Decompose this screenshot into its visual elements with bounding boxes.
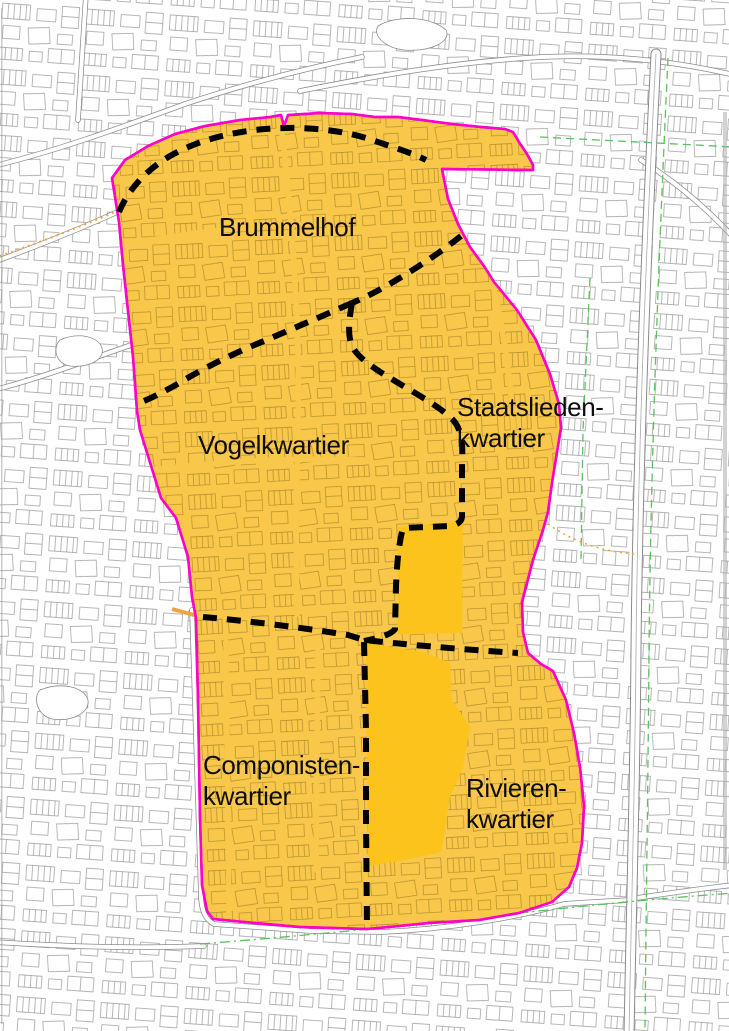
sheet-edge-left [1,8,3,1024]
neighbourhood-plan-map: Brummelhof Vogelkwartier Staatslieden- k… [0,0,729,1031]
undeveloped-block-north [398,518,463,634]
sheet-edge-right [723,112,727,870]
map-canvas [0,0,729,1031]
